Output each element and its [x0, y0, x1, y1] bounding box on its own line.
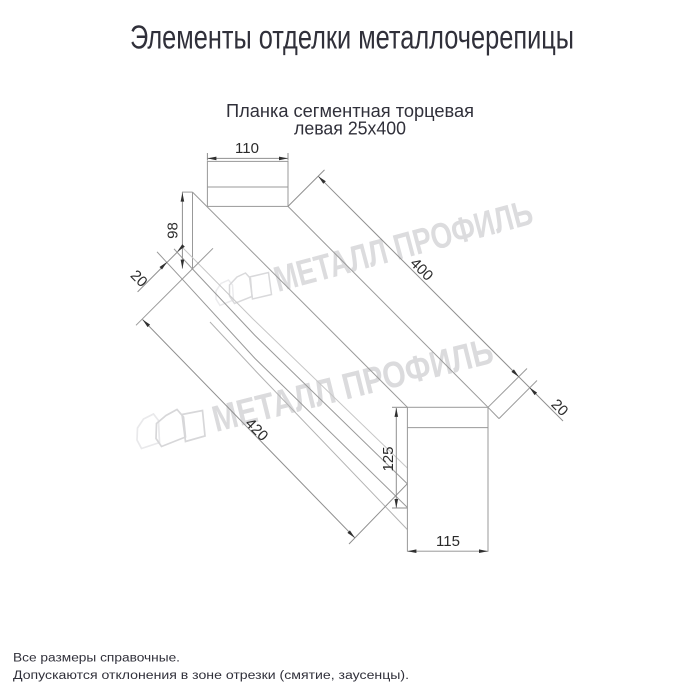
svg-text:125: 125	[380, 446, 397, 471]
svg-text:115: 115	[436, 533, 460, 550]
svg-text:левая 25х400: левая 25х400	[294, 119, 406, 139]
svg-text:110: 110	[235, 140, 259, 157]
svg-text:Элементы отделки металлочерепи: Элементы отделки металлочерепицы	[130, 18, 574, 55]
svg-text:Допускаются отклонения в зоне: Допускаются отклонения в зоне отрезки (с…	[13, 670, 409, 682]
svg-text:Все размеры справочные.: Все размеры справочные.	[13, 653, 180, 665]
svg-text:98: 98	[165, 222, 182, 239]
